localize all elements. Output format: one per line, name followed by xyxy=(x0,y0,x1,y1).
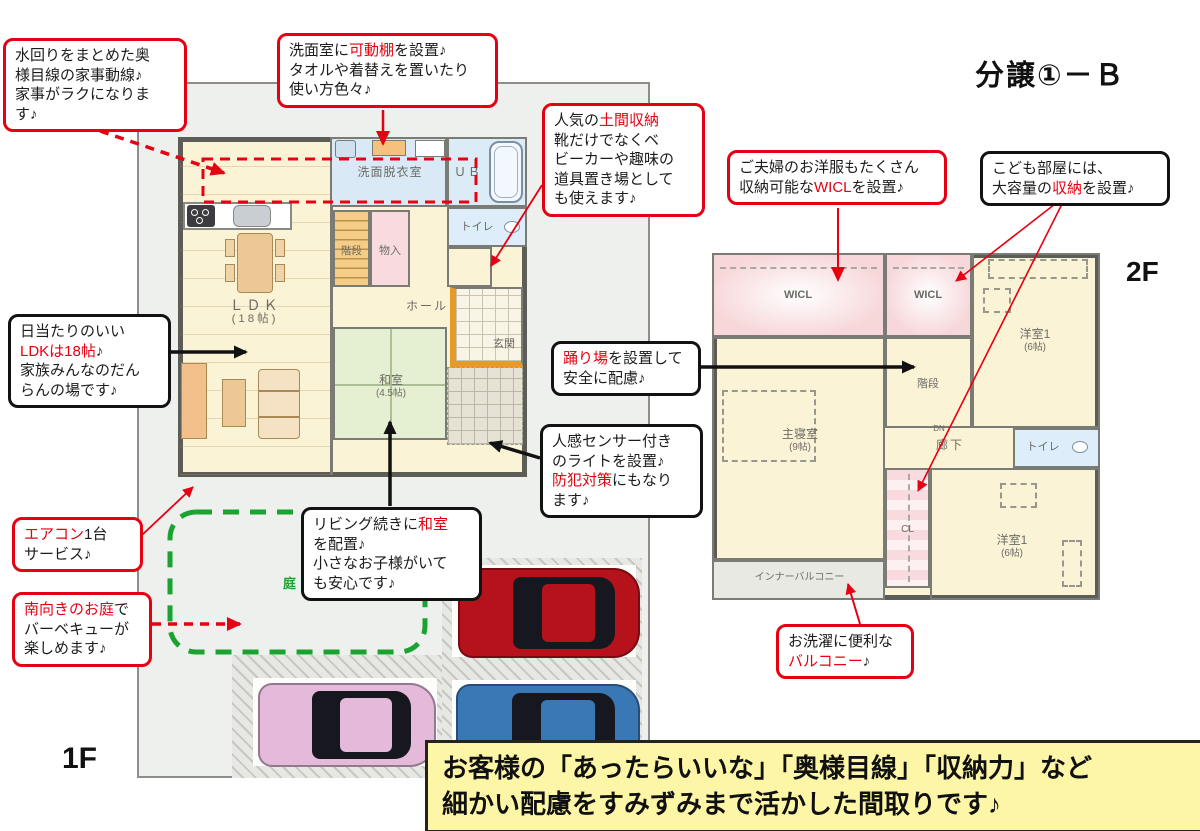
room-label-toilet-2f: トイレ xyxy=(1013,441,1073,454)
callout-wicl: ご夫婦のお洋服もたくさん 収納可能なWICLを設置♪ xyxy=(727,150,947,205)
room-label-mono: 物入 xyxy=(370,245,410,258)
entrance-porch xyxy=(447,367,523,445)
callout-kodomo: こども部屋には、 大容量の収納を設置♪ xyxy=(980,151,1170,206)
toilet-icon-2f xyxy=(1072,441,1088,453)
room-label-ldk: ＬＤＫ(18帖) xyxy=(195,297,315,326)
room-label-yoshitsu-b: 洋室1(6帖) xyxy=(962,534,1062,559)
room-label-washitsu: 和室(4.5帖) xyxy=(341,374,441,399)
red-car-roof xyxy=(542,584,595,643)
room-label-senmen: 洗面脱衣室 xyxy=(332,166,448,180)
room-label-wicl1: WICL xyxy=(738,289,858,302)
wash-basin xyxy=(415,140,445,157)
room-genkan xyxy=(450,287,523,367)
tv-board xyxy=(181,363,207,439)
callout-minami: 南向きのお庭で バーベキューが 楽しめます♪ xyxy=(12,592,152,667)
bathtub-icon xyxy=(489,141,523,203)
floor-label-2f: 2F xyxy=(1126,256,1159,288)
closet-dotted xyxy=(1000,483,1037,508)
room-label-rouka: 廊下 xyxy=(910,439,990,453)
closet-dotted xyxy=(1062,540,1082,587)
dining-chair xyxy=(275,264,285,282)
room-label-shusinshitsu: 主寝室(9帖) xyxy=(740,428,860,453)
room-label-genkan: 玄関 xyxy=(474,338,534,351)
room-label-inner-balcony: インナーバルコニー xyxy=(722,572,877,584)
callout-odoriba: 踊り場を設置して 安全に配慮♪ xyxy=(551,341,701,396)
callout-balcony: お洗濯に便利な バルコニー♪ xyxy=(776,624,914,679)
floor-label-1f: 1F xyxy=(62,742,97,776)
sink-icon xyxy=(233,205,271,227)
callout-aircon: エアコン1台 サービス♪ xyxy=(12,517,143,572)
room-label-cl: CL xyxy=(886,524,929,536)
low-table xyxy=(222,379,246,427)
callout-mizumawari: 水回りをまとめた奥 様目線の家事動線♪ 家事がラクになりま す♪ xyxy=(3,38,187,132)
pink-car xyxy=(258,683,436,767)
toilet-icon-1f xyxy=(504,221,520,233)
room-label-wicl2: WICL xyxy=(888,289,968,302)
room-label-dn: DN xyxy=(928,424,950,433)
movable-shelf xyxy=(372,140,406,156)
bottom-banner: お客様の「あったらいいな」「奥様目線」「収納力」など 細かい配慮をすみずみまで活… xyxy=(425,740,1200,831)
room-label-ub: ＵＢ xyxy=(448,166,488,180)
doma-storage xyxy=(447,247,492,287)
room-label-yoshitsu-a: 洋室1(6帖) xyxy=(985,328,1085,353)
pink-car-roof xyxy=(340,698,392,752)
page-title: 分譲①－Ｂ xyxy=(975,52,1126,94)
red-car xyxy=(458,568,640,658)
hanger-pipe xyxy=(720,267,877,269)
dining-chair xyxy=(225,239,235,257)
callout-hiatari: 日当たりのいい LDKは18帖♪ 家族みんなのだん らんの場です♪ xyxy=(8,314,171,408)
washing-machine-icon xyxy=(335,140,356,158)
room-label-stairs-2f: 階段 xyxy=(888,378,968,391)
callout-living: リビング続きに和室 を配置♪ 小さなお子様がいて も安心です♪ xyxy=(301,507,482,601)
garden-label: 庭 xyxy=(283,573,296,592)
room-label-toilet-1f: トイレ xyxy=(449,221,505,234)
sofa xyxy=(258,369,300,439)
dining-table xyxy=(237,233,273,293)
callout-senmen: 洗面室に可動棚を設置♪ タオルや着替えを置いたり 使い方色々♪ xyxy=(277,33,498,108)
dining-chair xyxy=(225,264,235,282)
hanger-pipe xyxy=(893,267,964,269)
flyer-page: 洗面脱衣室 ＵＢ トイレ 階段 物入 ホール 玄関 ＬＤＫ(18帖) 和室(4.… xyxy=(0,0,1200,831)
closet-dotted xyxy=(983,288,1011,313)
stove-icon xyxy=(187,205,215,227)
closet-dotted xyxy=(988,259,1088,279)
room-label-hall: ホール xyxy=(387,300,467,314)
dining-chair xyxy=(275,239,285,257)
room-label-stairs-1f: 階段 xyxy=(333,245,370,257)
callout-doma: 人気の土間収納 靴だけでなくベ ビーカーや趣味の 道具置き場として も使えます♪ xyxy=(542,103,705,217)
callout-jinkan: 人感センサー付き のライトを設置♪ 防犯対策にもなり ます♪ xyxy=(540,424,703,518)
